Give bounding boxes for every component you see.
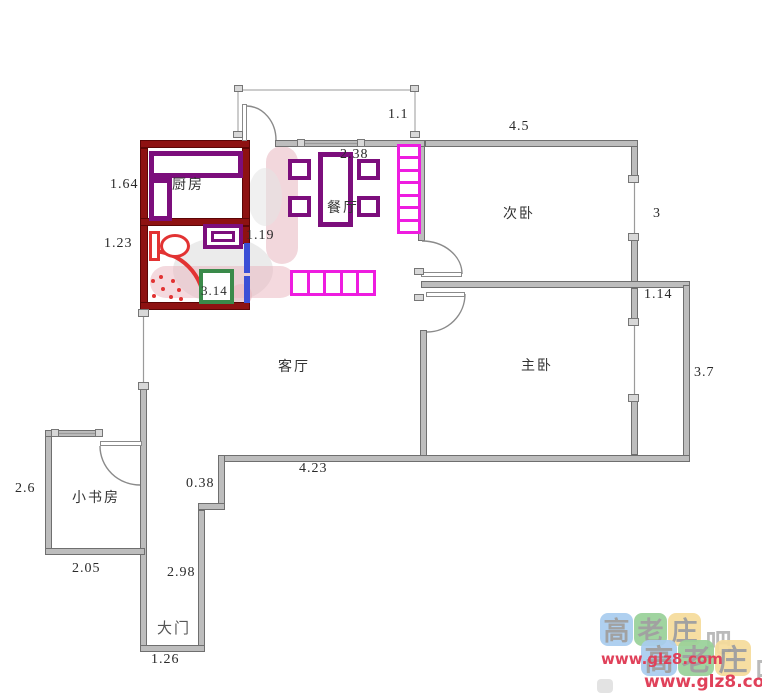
bath-door-blue xyxy=(244,243,250,273)
dim-bedroom2-height: 3 xyxy=(653,206,661,222)
room-label-study: 小书房 xyxy=(72,487,120,507)
dim-bath-height: 1.23 xyxy=(104,236,133,252)
dim-cap xyxy=(51,429,59,437)
dim-bath-door: 1.19 xyxy=(246,228,275,244)
dim-cap xyxy=(297,139,305,147)
dim-kitchen-height: 1.64 xyxy=(110,177,139,193)
cabinet-horizontal xyxy=(290,270,376,296)
dim-step: 0.38 xyxy=(186,476,215,492)
toilet-bowl xyxy=(160,234,190,258)
lines-and-arcs xyxy=(0,0,762,694)
dim-corridor-height: 2.98 xyxy=(167,565,196,581)
kitchen-counter-left xyxy=(149,178,172,221)
watermark-url: www.glz8.com xyxy=(601,650,723,668)
dim-cap xyxy=(410,131,420,138)
room-label-dining: 餐厅 xyxy=(327,197,359,217)
watermark-char: 高 xyxy=(600,613,633,646)
dim-entry-width: 1.26 xyxy=(151,652,180,668)
floor-plan: 厨房 餐厅 次卧 主卧 客厅 小书房 大门 1.64 1.23 1.19 3.1… xyxy=(0,0,762,694)
dim-balcony-depth: 1.1 xyxy=(388,107,409,123)
dim-master-height: 3.7 xyxy=(694,365,715,381)
dim-cap xyxy=(414,294,424,301)
cabinet-vertical xyxy=(397,144,421,234)
dim-cap xyxy=(628,175,639,183)
dining-chair xyxy=(288,159,311,180)
room-label-entry: 大门 xyxy=(157,617,191,638)
room-label-living: 客厅 xyxy=(278,356,310,376)
toilet-tank xyxy=(149,231,160,261)
room-label-bedroom2: 次卧 xyxy=(503,203,535,223)
dim-cap xyxy=(414,268,424,275)
watermark-tile-fragment xyxy=(597,679,613,693)
dim-cap xyxy=(628,318,639,326)
dim-cap xyxy=(234,85,243,92)
dining-chair xyxy=(357,196,380,217)
dim-study-width: 2.05 xyxy=(72,561,101,577)
washing-machine-inner xyxy=(211,231,235,242)
dim-bay-width: 1.14 xyxy=(644,287,673,303)
room-label-kitchen: 厨房 xyxy=(172,174,204,194)
bath-door-blue xyxy=(244,276,250,303)
dim-cap xyxy=(233,131,243,138)
room-label-master: 主卧 xyxy=(521,355,553,375)
dim-study-height: 2.6 xyxy=(15,481,36,497)
dim-cap xyxy=(357,139,365,147)
dim-living-width: 4.23 xyxy=(299,461,328,477)
watermark-url: www.glz8.com xyxy=(644,672,762,692)
dim-cap xyxy=(628,233,639,241)
dim-bath-box: 3.14 xyxy=(201,283,228,299)
dim-cap xyxy=(138,309,149,317)
dim-cap xyxy=(95,429,103,437)
dim-cap xyxy=(410,85,419,92)
dim-dining-table: 2.38 xyxy=(340,147,369,163)
dining-chair xyxy=(288,196,311,217)
dim-bedroom2-width: 4.5 xyxy=(509,119,530,135)
dim-cap xyxy=(138,382,149,390)
dim-cap xyxy=(628,394,639,402)
